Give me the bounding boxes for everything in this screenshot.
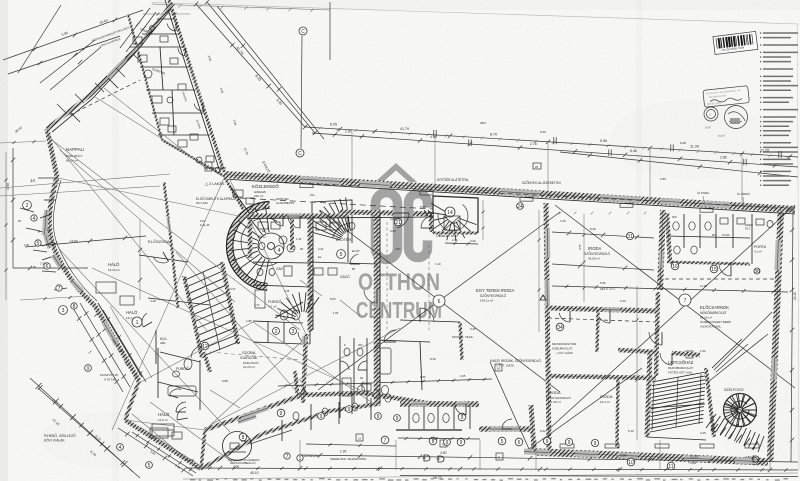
svg-text:9: 9 (87, 366, 90, 372)
svg-text:1.70: 1.70 (254, 303, 260, 307)
svg-text:1.40: 1.40 (296, 237, 302, 241)
svg-text:1.05: 1.05 (333, 311, 339, 315)
svg-text:4.55: 4.55 (578, 244, 582, 250)
svg-text:36: 36 (754, 269, 760, 275)
svg-text:85: 85 (352, 267, 355, 271)
svg-text:5: 5 (148, 463, 151, 469)
svg-text:4: 4 (119, 445, 122, 451)
svg-text:6.05: 6.05 (540, 130, 546, 134)
svg-text:9: 9 (446, 440, 449, 446)
svg-text:25: 25 (535, 165, 539, 169)
svg-text:90: 90 (262, 229, 265, 233)
svg-text:ALJZATBETON: ALJZATBETON (276, 201, 294, 205)
svg-text:35/2: 35/2 (480, 121, 486, 125)
svg-text:6.48: 6.48 (680, 141, 686, 145)
svg-text:2.20: 2.20 (318, 247, 324, 251)
